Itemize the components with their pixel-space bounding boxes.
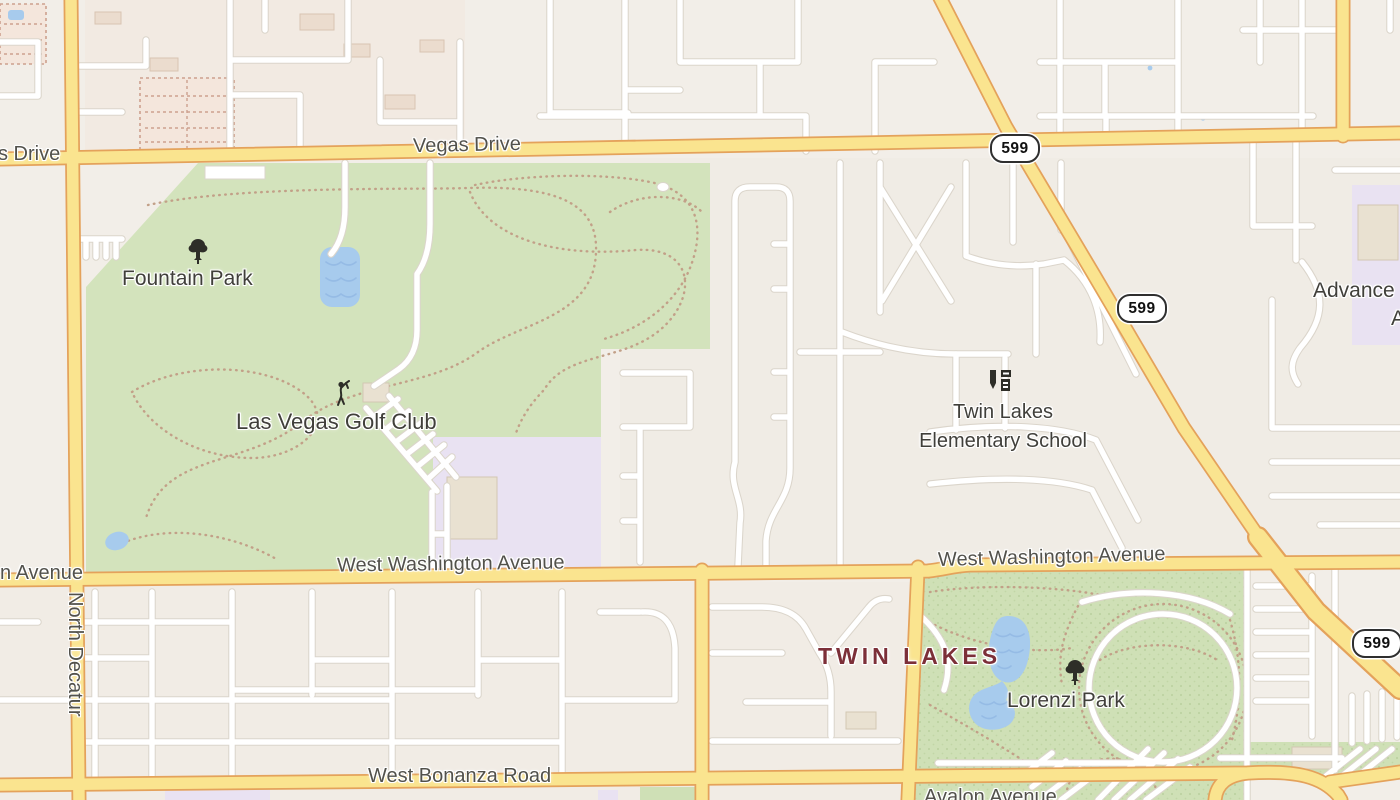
neighborhood-label-twin-lakes: TWIN LAKES [818, 643, 1001, 670]
golfer-icon [332, 380, 352, 408]
route-599-shield: 599 [990, 134, 1040, 163]
road-label-washington-left: West Washington Avenue [337, 551, 565, 577]
road-label-north-decatur: North Decatur [63, 592, 86, 717]
road-label-washington-partial: n Avenue [0, 562, 83, 585]
poi-label-golf-club: Las Vegas Golf Club [236, 409, 437, 435]
poi-label-fountain-park: Fountain Park [122, 267, 253, 291]
route-599-shield: 599 [1352, 629, 1400, 658]
route-599-shield: 599 [1117, 294, 1167, 323]
poi-label-advance-partial-line2: A [1391, 307, 1400, 331]
school-icon [987, 369, 1019, 393]
poi-label-lorenzi-park: Lorenzi Park [1007, 689, 1125, 713]
tree-icon [1063, 659, 1087, 687]
tree-icon [186, 238, 210, 266]
road-label-avalon: Avalon Avenue [924, 786, 1057, 800]
road-label-vegas-drive-partial: s Drive [0, 143, 60, 166]
road-label-bonanza: West Bonanza Road [368, 765, 551, 788]
map-canvas[interactable]: 599 599 599 s Drive Vegas Drive n Avenue… [0, 0, 1400, 800]
poi-label-school-line1: Twin Lakes [878, 398, 1128, 427]
road-label-vegas-drive: Vegas Drive [413, 133, 521, 158]
poi-label-school: Twin Lakes Elementary School [878, 398, 1128, 456]
poi-label-advance-partial-line1: Advance [1313, 279, 1395, 303]
map-tiles [0, 0, 1400, 800]
poi-label-school-line2: Elementary School [878, 427, 1128, 456]
